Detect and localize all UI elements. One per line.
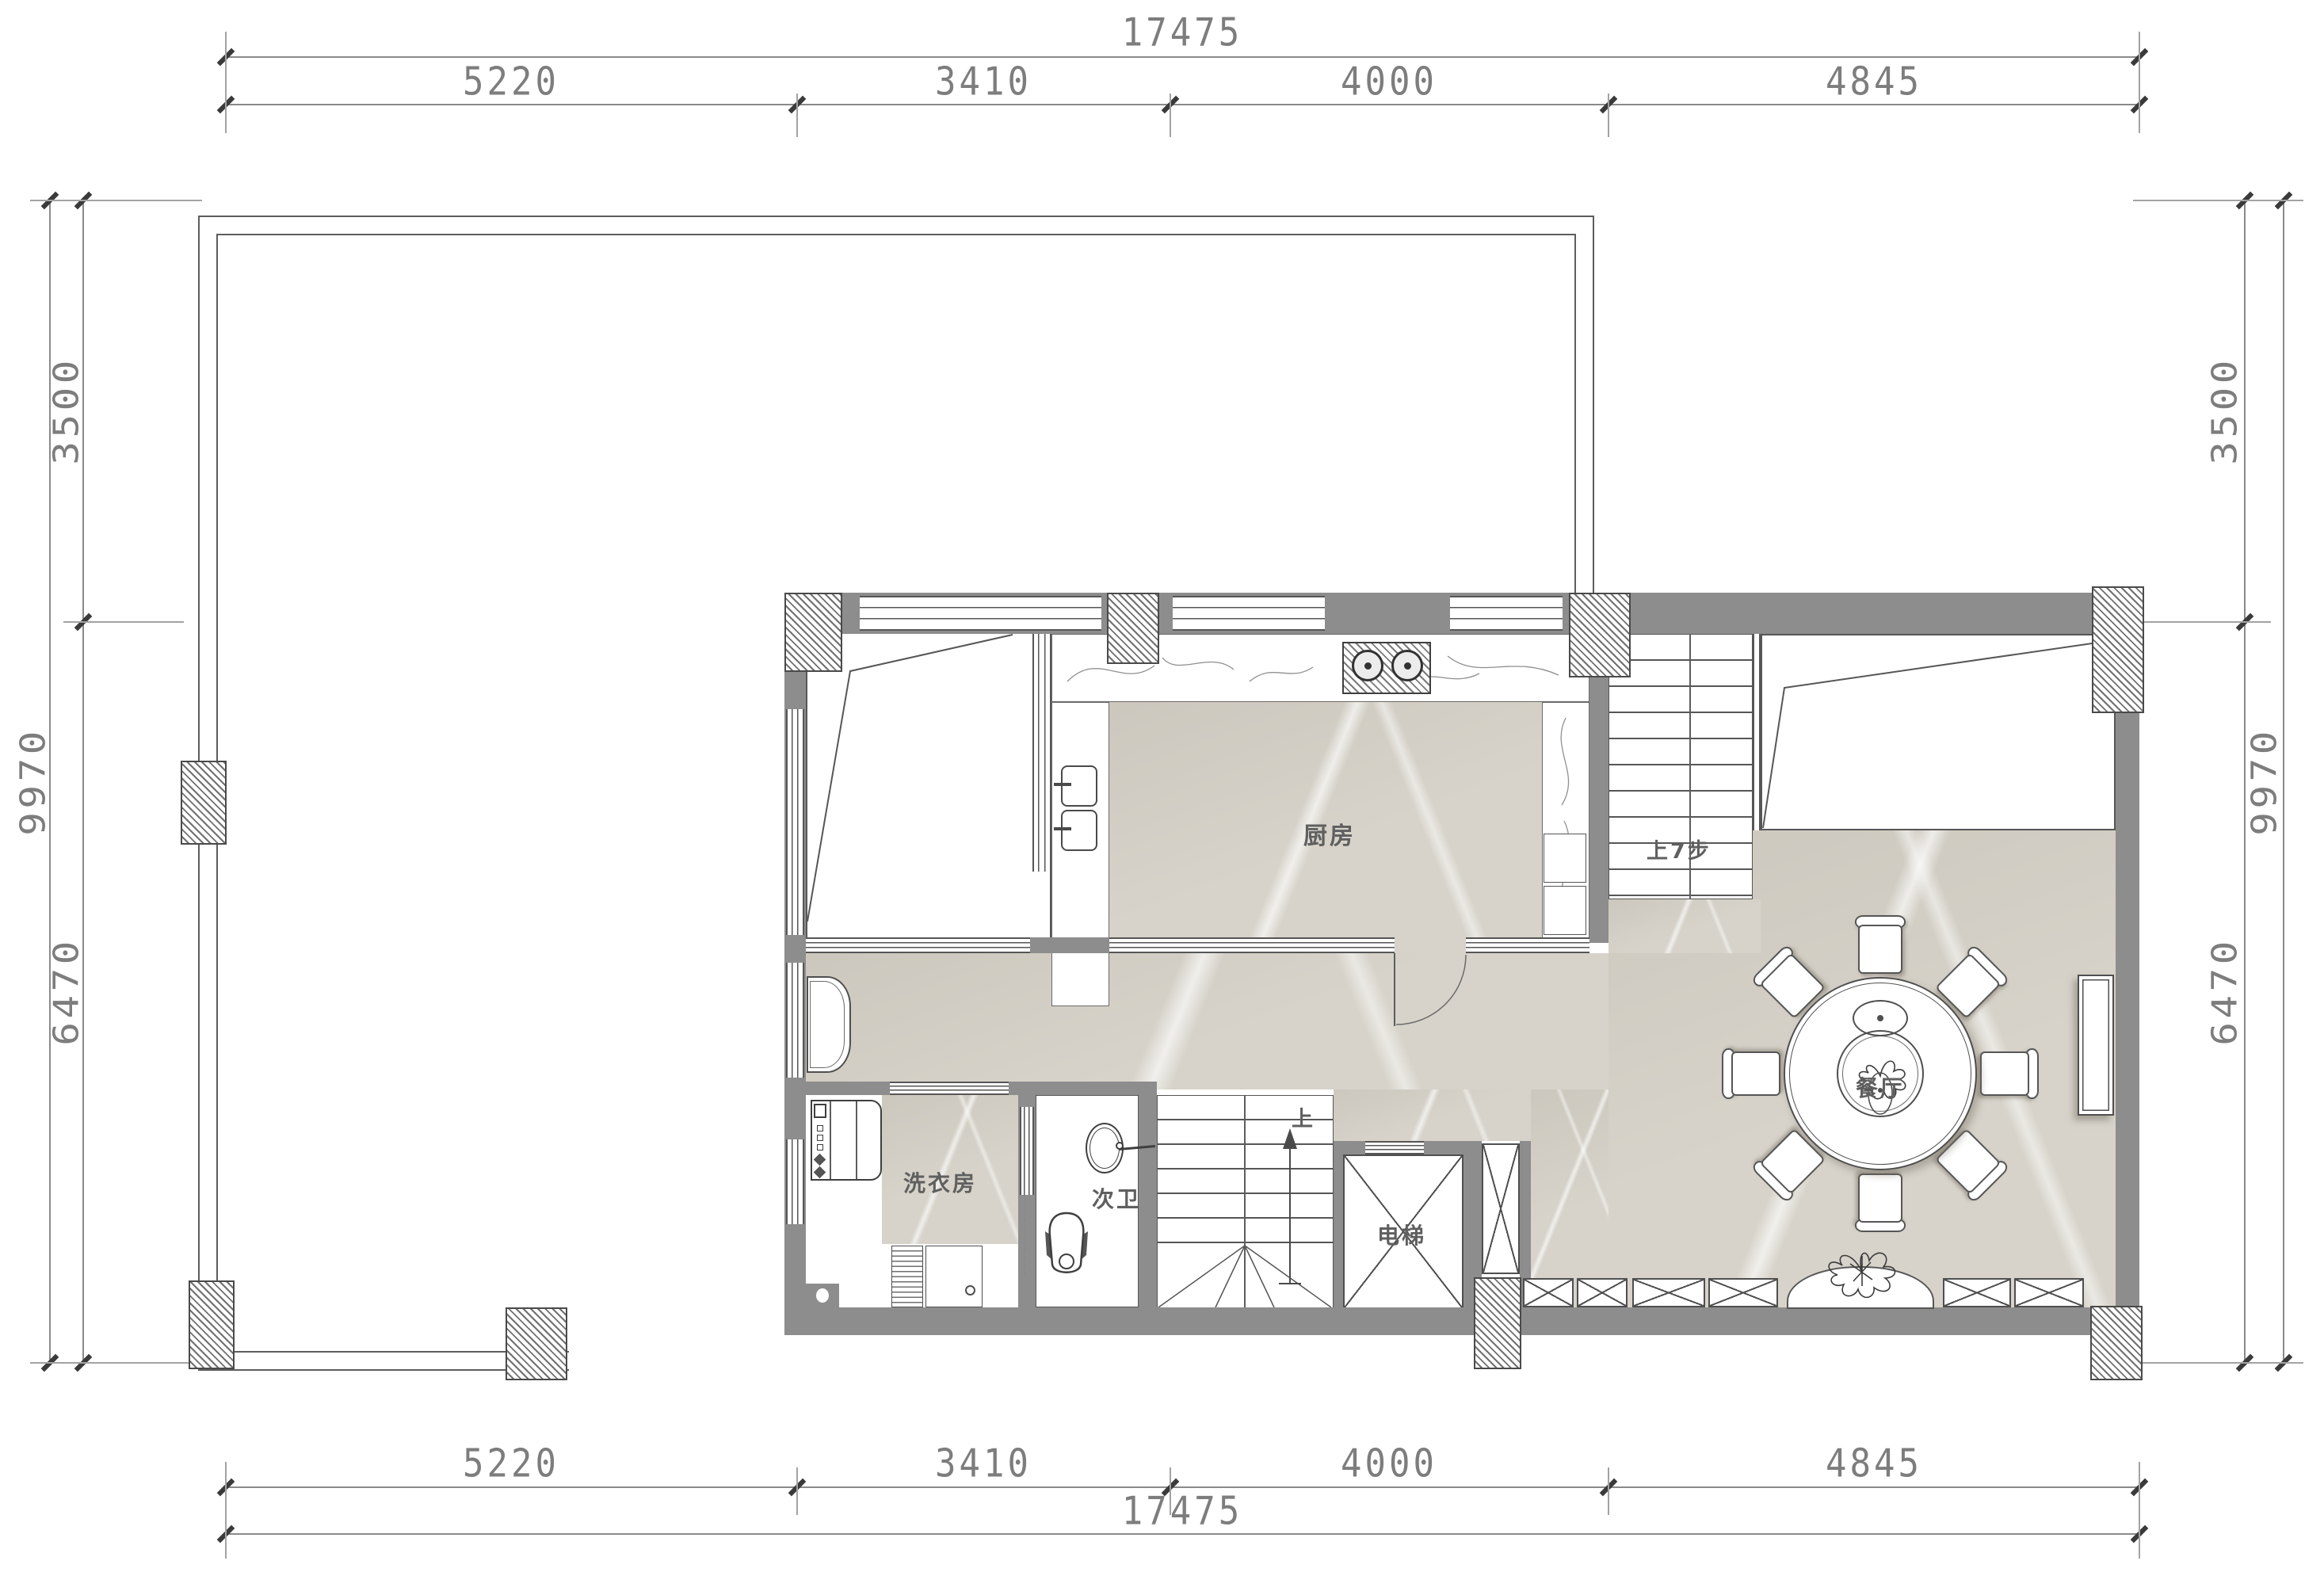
wall-kitchen-east: [1589, 677, 1608, 943]
kitchen-sink-bowl-2: [1061, 810, 1097, 851]
dim-top-seg0: 5220: [432, 59, 590, 105]
bath-pocket-door: [1020, 1107, 1034, 1195]
wall-corridor-south-1: [806, 1082, 890, 1095]
duct-shaft: [1482, 1143, 1520, 1274]
kitchen-counter-west: [1051, 702, 1109, 1006]
dim-top-seg1: 3410: [904, 59, 1063, 105]
bath-basin-inner: [1089, 1128, 1120, 1169]
column-shaft-south: [1474, 1277, 1521, 1369]
terrace-wall-outer-right: [1593, 216, 1594, 594]
dim-ext: [2139, 32, 2140, 133]
dim-ext: [30, 1362, 202, 1364]
window-west-1: [786, 709, 804, 935]
terrace-wall-outer-top: [198, 216, 1594, 217]
wall-elevator-top-1: [1334, 1141, 1365, 1154]
column-n-stairs: [1569, 593, 1631, 677]
laundry-door-opening: [890, 1082, 1009, 1095]
dim-bottom-seg2: 4000: [1310, 1441, 1468, 1486]
shower-tray: [925, 1246, 983, 1307]
washer-divider-1: [830, 1101, 831, 1179]
wall-east: [2116, 634, 2139, 1307]
sink-faucet-2: [1054, 827, 1071, 830]
room-label-laundry: 洗衣房: [903, 1166, 977, 1198]
south-window-1: [1523, 1278, 1574, 1307]
south-window-6: [2014, 1278, 2084, 1307]
wall-band-mid: [1030, 937, 1109, 953]
south-window-4: [1708, 1278, 1778, 1307]
floor-east-of-shaft: [1531, 1089, 1608, 1307]
dim-top-total-label: 17475: [1103, 10, 1261, 55]
dim-ext: [225, 32, 227, 133]
window-north-2: [1173, 596, 1325, 631]
pantry-slope-line: [806, 630, 1051, 939]
dim-top-seg2: 4000: [1310, 59, 1468, 105]
wall-elevator-west: [1334, 1141, 1343, 1309]
wall-south: [784, 1307, 2143, 1335]
column-sw-building: [506, 1307, 567, 1380]
dim-ext: [1608, 93, 1609, 137]
floor-mat: [891, 1246, 923, 1307]
ne-slope-line: [1761, 634, 2116, 830]
stove-burner-2-dot: [1404, 662, 1411, 670]
annotation-up: 上: [1292, 1101, 1315, 1132]
kitchen-cabinet-2: [1544, 886, 1586, 935]
dim-ext: [2133, 200, 2303, 201]
column-se: [2090, 1306, 2143, 1380]
dim-ext: [1608, 1467, 1609, 1515]
kitchen-cabinet-1: [1544, 834, 1586, 883]
dim-bottom-seg-line: [226, 1486, 2139, 1488]
dim-top-seg3: 4845: [1795, 59, 1953, 105]
south-window-2: [1577, 1278, 1628, 1307]
elevator-door: [1365, 1141, 1424, 1154]
kitchen-door-leaf: [1394, 953, 1395, 1026]
washer-button-2: [817, 1135, 823, 1141]
wall-bath-east: [1139, 1082, 1157, 1309]
main-staircase-rail: [1244, 1095, 1246, 1309]
terrace-wall-inner-top: [216, 234, 1576, 235]
dim-right-seg0: 3500: [2205, 322, 2246, 500]
floor-below-ne-stairs: [1608, 899, 1761, 953]
window-north-1: [860, 596, 1101, 631]
laundry-corner-box-hole: [816, 1288, 829, 1303]
window-west-3: [786, 1139, 804, 1224]
dim-left-seg0: 3500: [47, 322, 87, 500]
washer-button-3: [817, 1144, 823, 1151]
column-terrace-sw: [189, 1280, 235, 1369]
dim-bottom-seg1: 3410: [904, 1441, 1063, 1486]
floor-hall-north-elevator: [1334, 1089, 1531, 1141]
dim-left-seg1: 6470: [47, 903, 87, 1081]
column-ne: [2092, 586, 2144, 713]
dim-ext: [2144, 621, 2271, 623]
washer-divider-2: [856, 1101, 857, 1179]
chair-north: [1855, 915, 1906, 974]
chair-west: [1722, 1048, 1780, 1099]
dim-ext: [225, 1462, 227, 1559]
annotation-up7: 上7步: [1647, 834, 1712, 864]
window-west-2: [786, 963, 804, 1078]
stair-up-arrow: [1266, 1125, 1314, 1292]
floor-plan-canvas: 17475 5220 3410 4000 4845 5220 3410 4000…: [0, 0, 2324, 1576]
pantry-east-cabinet: [1032, 630, 1051, 872]
toilet: [1044, 1211, 1089, 1277]
terrace-wall-inner-right: [1574, 234, 1576, 594]
column-terrace-west: [181, 761, 227, 845]
wall-bath-north: [1020, 1082, 1157, 1095]
column-n-mid: [1107, 593, 1159, 664]
dim-ext: [1170, 1467, 1171, 1515]
dim-right-total-label: 9970: [2245, 693, 2285, 871]
south-window-3: [1632, 1278, 1705, 1307]
room-label-bath: 次卫: [1092, 1182, 1141, 1214]
column-nw: [784, 593, 842, 672]
dim-ext: [2133, 1362, 2303, 1364]
chair-south: [1855, 1173, 1906, 1232]
sink-faucet-1: [1054, 783, 1071, 786]
dim-ext: [1170, 93, 1171, 137]
kitchen-door-arc: [1395, 953, 1467, 1026]
dim-left-total-label: 9970: [13, 693, 54, 871]
room-label-kitchen: 厨房: [1303, 816, 1356, 851]
floor-corridor: [806, 953, 1608, 1089]
table-centerpiece-dot: [1877, 1015, 1883, 1021]
corridor-console-inner: [810, 981, 845, 1068]
dim-ext: [796, 1467, 798, 1515]
kitchen-south-band-b: [1109, 937, 1395, 953]
dim-ext: [796, 93, 798, 137]
room-label-elevator: 电梯: [1377, 1219, 1426, 1250]
window-north-3: [1450, 596, 1563, 631]
dim-ext: [63, 621, 184, 623]
dim-ext: [30, 200, 202, 201]
dim-bottom-total-label: 17475: [1103, 1489, 1261, 1534]
wall-corridor-south-2: [1009, 1082, 1020, 1095]
ne-staircase-east-wall: [1753, 634, 1761, 830]
plant-scribble: [1818, 1224, 1906, 1310]
south-window-5: [1943, 1278, 2011, 1307]
stove-burner-1-dot: [1364, 662, 1372, 670]
kitchen-south-band-c: [1466, 937, 1589, 953]
kitchen-sink-bowl-1: [1061, 765, 1097, 807]
shower-drain: [965, 1285, 975, 1296]
washer-button-1: [817, 1125, 823, 1131]
basin-spout-dot: [1116, 1142, 1124, 1150]
dim-right-seg1: 6470: [2205, 903, 2246, 1081]
dim-top-total-line: [226, 56, 2139, 58]
washer-display: [814, 1104, 826, 1118]
dim-bottom-seg0: 5220: [432, 1441, 590, 1486]
room-label-dining: 餐厅: [1856, 1071, 1905, 1103]
chair-east: [1980, 1048, 2039, 1099]
dim-ext: [2139, 1462, 2140, 1559]
dim-bottom-seg3: 4845: [1795, 1441, 1953, 1486]
bath-pocket-door-track: [1024, 1195, 1025, 1276]
kitchen-south-band-a: [806, 937, 1030, 953]
sideboard: [2078, 975, 2114, 1116]
